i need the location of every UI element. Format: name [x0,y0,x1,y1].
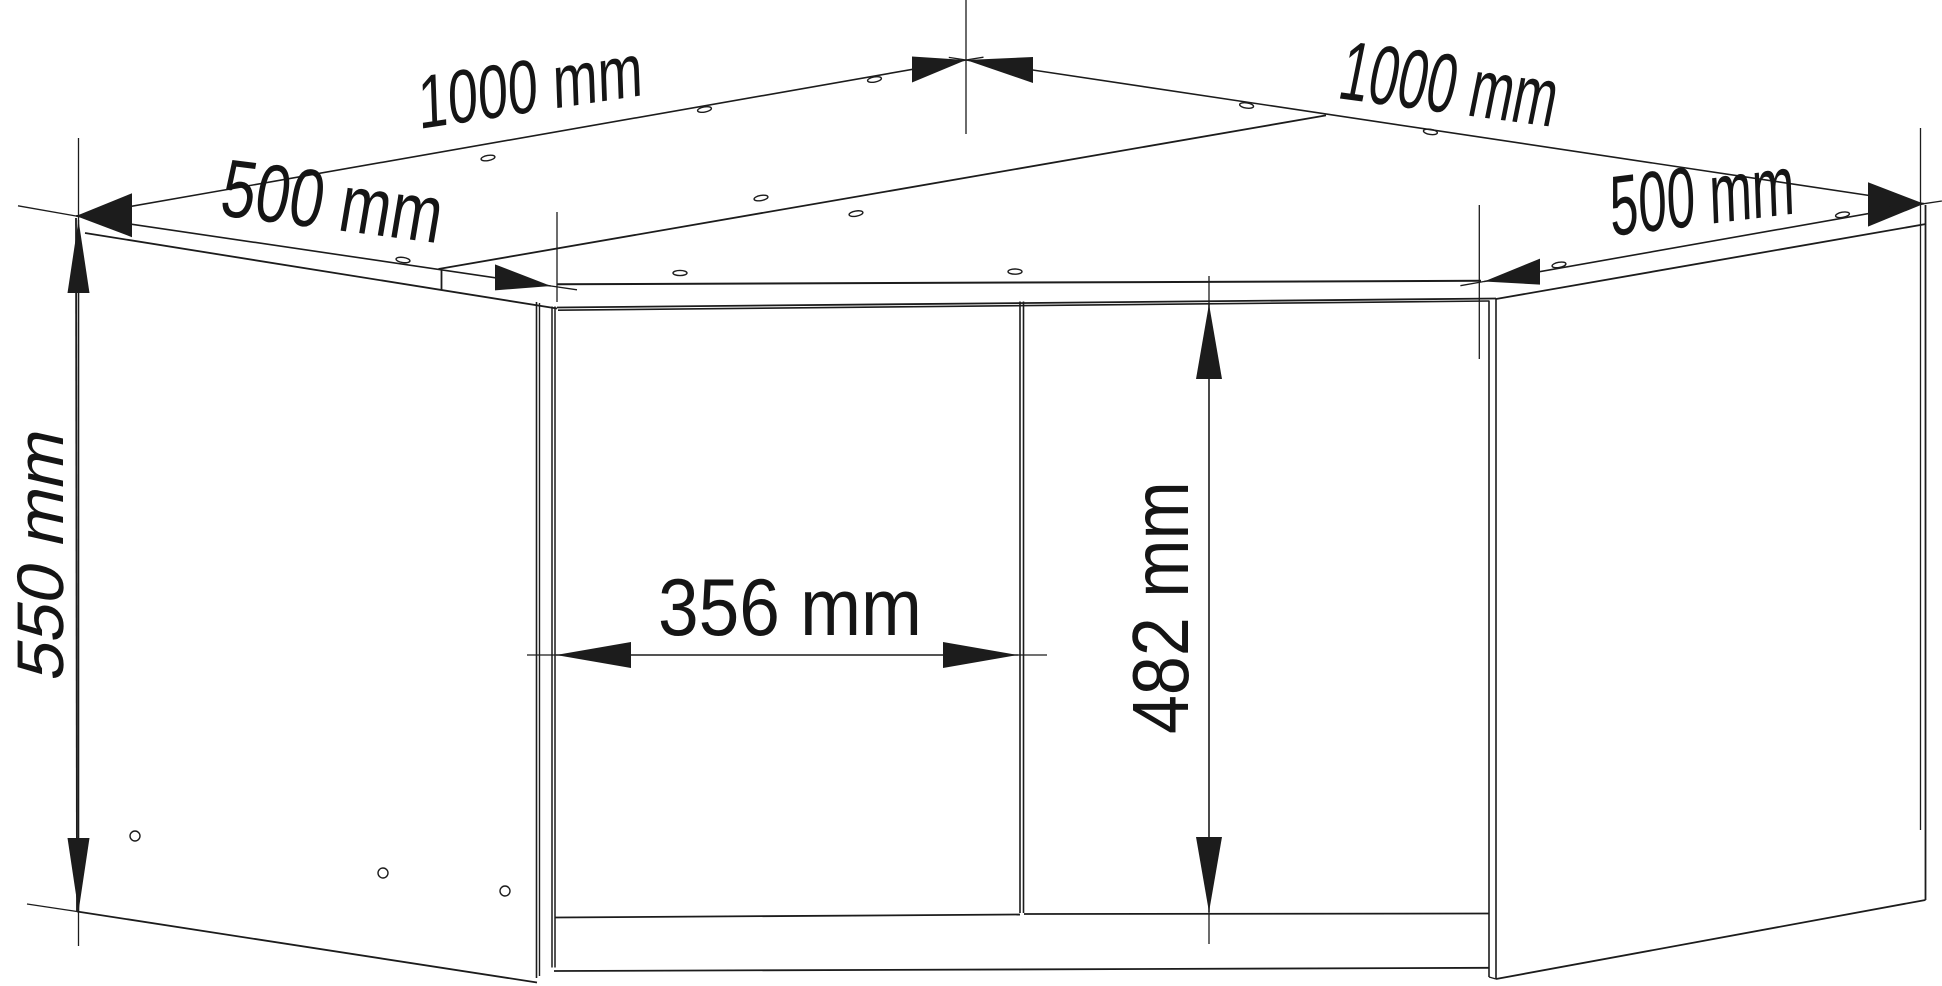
svg-text:356 mm: 356 mm [658,563,922,653]
svg-text:550 mm: 550 mm [4,421,77,686]
svg-text:482 mm: 482 mm [1116,481,1205,734]
